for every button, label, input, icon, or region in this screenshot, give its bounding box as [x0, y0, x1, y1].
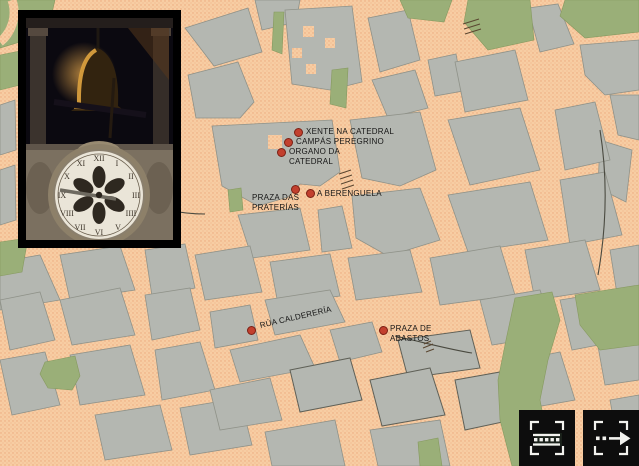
svg-text:VIII: VIII [60, 209, 74, 218]
map-label-xente-na-catedral: XENTE NA CATEDRAL [306, 127, 394, 137]
map-label-praza-de-abastos: PRAZA DEABASTOS [390, 324, 432, 343]
svg-text:I: I [116, 159, 119, 168]
map-label-campas-peregrino: CAMPÁS PEREGRINO [296, 137, 384, 147]
map-label-rua-caldereria: RÚA CALDERERÍA [259, 305, 333, 331]
bracket-dashed-arrow-icon [583, 410, 639, 466]
map-label-a-berenguela: A BERENGUELA [317, 189, 382, 199]
map-marker-a-berenguela[interactable] [306, 189, 315, 198]
map-marker-organo-da-catedral[interactable] [277, 148, 286, 157]
photo-inset-berenguela: XII I II III IIII V VI VII VIII IX X XI [18, 10, 181, 248]
bracket-dashed-bar-icon [519, 410, 575, 466]
svg-text:IIII: IIII [126, 209, 137, 218]
svg-text:VI: VI [95, 228, 104, 237]
svg-text:XI: XI [77, 159, 86, 168]
map-label-praza-das-praterias: PRAZA DASPRATERÍAS [252, 193, 299, 212]
bell-and-clock-photo: XII I II III IIII V VI VII VIII IX X XI [26, 18, 173, 240]
map-screen: XENTE NA CATEDRALCAMPÁS PEREGRINOORGANO … [0, 0, 639, 466]
map-marker-praza-de-abastos[interactable] [379, 326, 388, 335]
filmstrip-button[interactable] [519, 410, 575, 466]
svg-text:X: X [64, 172, 70, 181]
svg-text:V: V [115, 223, 121, 232]
map-marker-xente-na-catedral[interactable] [294, 128, 303, 137]
svg-text:XII: XII [93, 154, 104, 163]
map-marker-rua-caldereria[interactable] [247, 326, 256, 335]
forward-button[interactable] [583, 410, 639, 466]
map-label-organo-da-catedral: ORGANO DACATEDRAL [289, 147, 340, 166]
map-marker-campas-peregrino[interactable] [284, 138, 293, 147]
svg-text:III: III [132, 191, 140, 200]
svg-text:II: II [128, 172, 134, 181]
svg-text:VII: VII [74, 223, 85, 232]
